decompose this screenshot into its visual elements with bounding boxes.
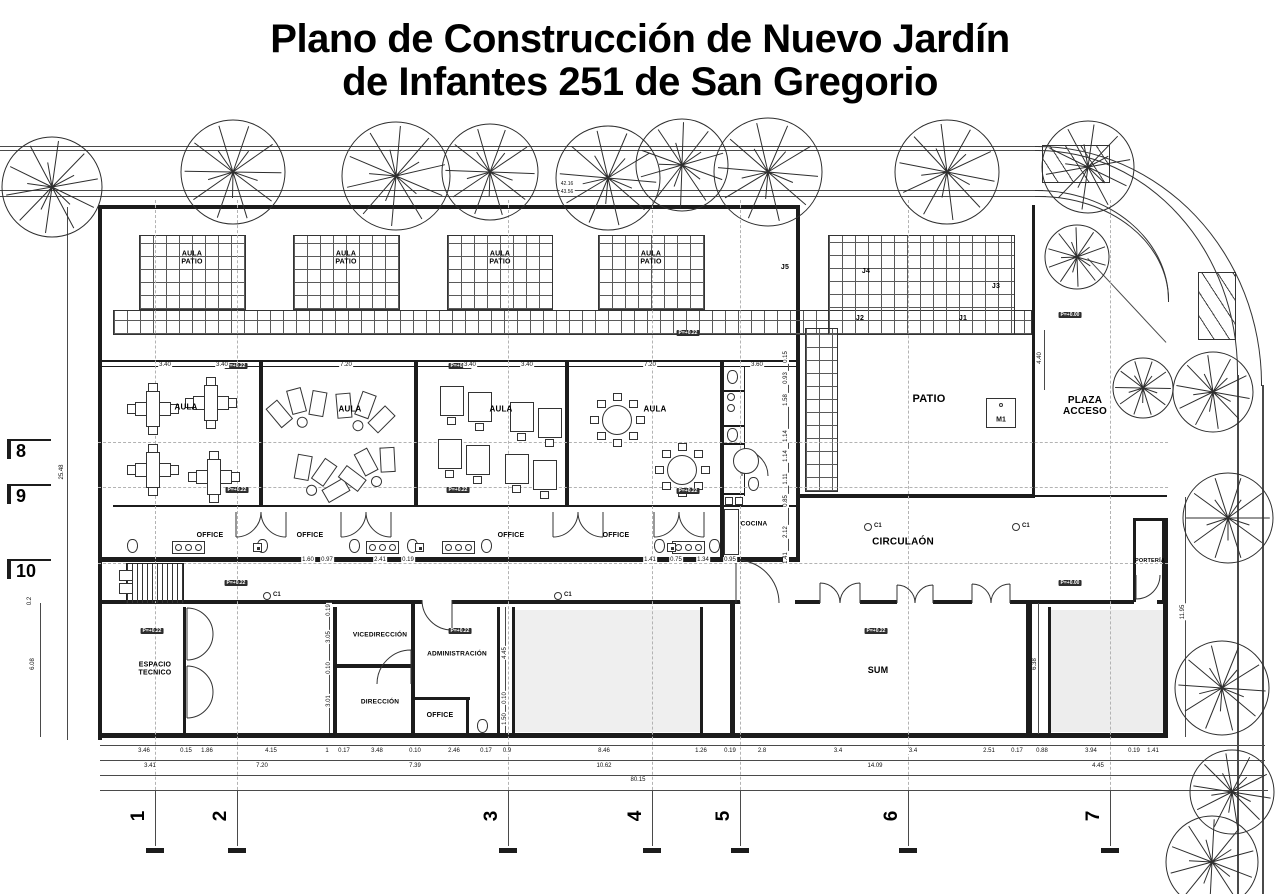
wall xyxy=(98,733,1168,738)
chair xyxy=(662,450,671,458)
fixture-dot xyxy=(419,547,422,550)
elevation-marker: P=+0.00 xyxy=(1059,580,1082,586)
room-label-patio: PATIO xyxy=(913,393,946,405)
dimension-text: 0.15 xyxy=(179,748,193,754)
stool xyxy=(304,483,319,498)
chair xyxy=(170,465,179,475)
door-arc xyxy=(915,585,933,603)
classroom-desk xyxy=(468,392,492,422)
door-arc xyxy=(187,608,213,634)
dimension-text: 42.16 xyxy=(560,181,575,187)
axis-tick xyxy=(7,439,11,459)
joint-label-J1: J1 xyxy=(959,315,967,323)
axis-marker-bottom-5: 5 xyxy=(713,806,735,826)
toilet xyxy=(477,719,488,733)
toilet xyxy=(727,428,738,442)
wall xyxy=(1035,495,1167,497)
axis-marker-bottom-4: 4 xyxy=(625,806,647,826)
axis-centerline xyxy=(155,200,157,845)
chair xyxy=(613,393,622,401)
dimension-text: 14.09 xyxy=(866,763,883,769)
dimension-text: 0.19 xyxy=(401,557,415,563)
door-arc xyxy=(366,512,391,537)
dimension-text: 7.20 xyxy=(339,362,353,368)
axis-tick xyxy=(643,848,661,853)
dimension-text: 0.9 xyxy=(502,748,512,754)
wall xyxy=(113,505,796,507)
door-arc xyxy=(422,600,452,630)
stair-landing xyxy=(119,570,133,581)
dimension-text: 4.45 xyxy=(1091,763,1105,769)
accessible-wc-circle xyxy=(733,448,759,474)
chair xyxy=(629,400,638,408)
sink xyxy=(369,544,376,551)
wall xyxy=(565,362,569,507)
dimension-text: 3.46 xyxy=(137,748,151,754)
wall xyxy=(700,607,703,735)
sink xyxy=(675,544,682,551)
dimension-text: 0.17 xyxy=(479,748,493,754)
elevation-marker: P=+0.22 xyxy=(226,487,249,493)
stair-landing xyxy=(119,583,133,594)
stool xyxy=(369,474,384,489)
dimension-text: 3.40 xyxy=(463,362,477,368)
tile-area xyxy=(805,328,838,492)
floor-plan: Plano de Construcción de Nuevo Jardín de… xyxy=(0,0,1280,894)
dimension-text: 1.26 xyxy=(694,748,708,754)
door-arc xyxy=(820,583,840,603)
chair xyxy=(629,432,638,440)
sink xyxy=(685,544,692,551)
stool xyxy=(295,416,308,429)
door-arc xyxy=(654,512,679,537)
wall xyxy=(730,600,735,735)
chair xyxy=(597,432,606,440)
planter-hatch xyxy=(1198,272,1236,340)
room-label-office-admin: OFFICE xyxy=(427,712,454,720)
door-arc xyxy=(991,584,1010,603)
wall xyxy=(333,607,337,735)
axis-tick xyxy=(1101,848,1119,853)
axis-tick xyxy=(7,559,11,579)
room-label-aula-patio-2: AULA PATIO xyxy=(335,250,356,265)
wall xyxy=(933,600,972,604)
dimension-text: 1.14 xyxy=(783,429,789,443)
chair xyxy=(209,494,219,503)
toilet xyxy=(709,539,720,553)
axis-marker-left-10: 10 xyxy=(16,561,36,582)
door-arc xyxy=(553,512,578,537)
dimension-text: 2.12 xyxy=(783,525,789,539)
sink xyxy=(465,544,472,551)
classroom-desk xyxy=(294,454,313,481)
wall xyxy=(1010,600,1134,604)
classroom-desk xyxy=(505,454,529,484)
room-label-office-3: OFFICE xyxy=(498,532,525,540)
axis-line xyxy=(7,439,51,441)
joint-label-J4: J4 xyxy=(862,268,870,276)
chair xyxy=(127,404,136,414)
m1-label: M1 xyxy=(996,417,1006,424)
door-arc xyxy=(261,512,286,537)
wall xyxy=(497,607,500,735)
dimension-text: 3.94 xyxy=(1084,748,1098,754)
dimension-text: 1.34 xyxy=(696,557,710,563)
dimension-text: 3.05 xyxy=(326,630,332,644)
chair xyxy=(678,443,687,451)
dimension-text: 3.60 xyxy=(750,362,764,368)
chair xyxy=(148,444,158,453)
sink xyxy=(175,544,182,551)
dimension-text: 0.75 xyxy=(669,557,683,563)
dimension-text: 6.38 xyxy=(1032,657,1038,671)
dimension-text: 0.19 xyxy=(723,748,737,754)
column-marker-c1-label: C1 xyxy=(564,592,572,598)
classroom-desk xyxy=(538,408,562,438)
tree-icon xyxy=(1043,223,1111,291)
tile-area xyxy=(293,235,400,310)
dimension-text: 3.40 xyxy=(520,362,534,368)
fixture-dot xyxy=(671,547,674,550)
elevation-marker: P=+0.22 xyxy=(677,488,700,494)
sink xyxy=(727,404,735,412)
elevation-marker: P=+0.22 xyxy=(865,628,888,634)
wall xyxy=(183,607,186,735)
chair xyxy=(512,485,521,493)
column-marker-c1-label: C1 xyxy=(1022,523,1030,529)
tile-area xyxy=(447,235,553,310)
column-marker-c1-label: C1 xyxy=(273,592,281,598)
sink xyxy=(389,544,396,551)
sink xyxy=(727,393,735,401)
chair xyxy=(694,450,703,458)
classroom-table xyxy=(146,391,160,427)
axis-marker-left-8: 8 xyxy=(16,441,26,462)
tree-icon xyxy=(1040,119,1136,215)
dimension-text: 1.11 xyxy=(783,472,789,485)
chair xyxy=(517,433,526,441)
tree-icon xyxy=(179,118,287,226)
dimension-text: 0.17 xyxy=(1010,748,1024,754)
dimension-text: 0.17 xyxy=(337,748,351,754)
sink xyxy=(185,544,192,551)
dimension-text: 80.15 xyxy=(629,777,646,783)
tree-icon xyxy=(1111,356,1175,420)
chair xyxy=(206,420,216,429)
wall xyxy=(259,362,263,507)
classroom-table xyxy=(204,385,218,421)
chair xyxy=(540,491,549,499)
line xyxy=(67,207,68,740)
chair xyxy=(148,383,158,392)
dimension-text: 2.46 xyxy=(447,748,461,754)
line xyxy=(40,603,41,737)
sink xyxy=(695,544,702,551)
chair xyxy=(231,472,240,482)
chair xyxy=(590,416,599,424)
column-marker-c1-circle xyxy=(554,592,562,600)
dimension-text: 0.15 xyxy=(783,350,789,364)
dimension-text: 0.10 xyxy=(502,691,508,705)
dimension-text: 3.4 xyxy=(908,748,918,754)
room-label-sum: SUM xyxy=(868,666,889,676)
chair xyxy=(148,426,158,435)
kitchen-appliance xyxy=(735,497,743,505)
classroom-desk xyxy=(308,390,327,417)
wall xyxy=(98,360,800,362)
classroom-desk xyxy=(510,402,534,432)
line xyxy=(100,775,1265,776)
dimension-text: 1.50 xyxy=(502,712,508,726)
dimension-text: 0.10 xyxy=(326,661,332,675)
stairs xyxy=(126,563,184,604)
room-label-aula-patio-1: AULA PATIO xyxy=(181,250,202,265)
door-arc xyxy=(341,512,366,537)
door-arc xyxy=(377,650,411,684)
chair xyxy=(148,487,158,496)
chair xyxy=(188,472,197,482)
chair xyxy=(206,377,216,386)
classroom-desk xyxy=(438,439,462,469)
dimension-text: 0.93 xyxy=(783,371,789,385)
classroom-round-table xyxy=(602,405,632,435)
wall xyxy=(98,557,800,562)
room-fill xyxy=(1051,610,1163,732)
toilet xyxy=(481,539,492,553)
axis-tick xyxy=(228,848,246,853)
room-label-aula-patio-4: AULA PATIO xyxy=(640,250,661,265)
elevation-marker: P=+0.22 xyxy=(447,487,470,493)
wall xyxy=(796,205,800,562)
room-label-circulacion: CIRCULAÓN xyxy=(872,537,934,548)
axis-tick xyxy=(731,848,749,853)
elevation-marker: P=+0.22 xyxy=(225,580,248,586)
wall xyxy=(452,600,740,604)
dimension-text: 0.95 xyxy=(723,557,737,563)
classroom-table xyxy=(207,459,221,495)
chair xyxy=(613,439,622,447)
axis-tick xyxy=(7,484,11,504)
axis-line xyxy=(652,790,653,846)
dimension-text: 0.88 xyxy=(1035,748,1049,754)
dimension-text: 4.40 xyxy=(1037,351,1043,365)
tree-icon xyxy=(340,120,452,232)
dimension-text: 0.19 xyxy=(326,603,332,617)
dimension-text: 0.85 xyxy=(783,494,789,508)
chair xyxy=(473,476,482,484)
axis-centerline xyxy=(98,487,1168,489)
axis-tick xyxy=(146,848,164,853)
tree-icon xyxy=(1171,350,1255,434)
joint-label-J5: J5 xyxy=(781,264,789,272)
toilet xyxy=(748,477,759,491)
axis-line xyxy=(908,790,909,846)
sink xyxy=(445,544,452,551)
sink xyxy=(379,544,386,551)
axis-line xyxy=(1110,790,1111,846)
dimension-text: 3.40 xyxy=(215,362,229,368)
room-label-office-4: OFFICE xyxy=(603,532,630,540)
room-label-office-2: OFFICE xyxy=(297,532,324,540)
page-title-line1: Plano de Construcción de Nuevo Jardín xyxy=(0,18,1280,61)
room-label-plaza-acceso: PLAZA ACCESO xyxy=(1063,395,1107,417)
dimension-text: 11.95 xyxy=(1180,604,1186,621)
door-arc xyxy=(972,584,991,603)
classroom-round-table xyxy=(667,455,697,485)
dimension-text: 43.56 xyxy=(560,189,575,195)
column-marker-c1-circle xyxy=(864,523,872,531)
dimension-text: 2.51 xyxy=(982,748,996,754)
chair xyxy=(597,400,606,408)
room-label-direccion: DIRECCIÓN xyxy=(361,698,399,705)
classroom-desk xyxy=(286,387,307,415)
elevation-marker: P=+0.00 xyxy=(1059,312,1082,318)
tree-icon xyxy=(1181,471,1275,565)
room-label-administracion: ADMINISTRACIÓN xyxy=(427,650,487,657)
elevation-marker: P=+0.22 xyxy=(141,628,164,634)
axis-marker-bottom-2: 2 xyxy=(210,806,232,826)
m1-dot xyxy=(999,403,1003,407)
axis-marker-bottom-6: 6 xyxy=(881,806,903,826)
dimension-text: 1.41 xyxy=(783,551,789,565)
room-label-vicedireccion: VICEDIRECCIÓN xyxy=(353,631,407,638)
door-arc xyxy=(736,560,779,603)
wall xyxy=(795,600,820,604)
room-label-cocina: COCINA xyxy=(741,520,768,527)
door-arc xyxy=(679,512,704,537)
door-arc xyxy=(236,512,261,537)
room-label-espacio-tecnico: ESPACIO TECNICO xyxy=(139,661,172,676)
chair xyxy=(209,451,219,460)
axis-marker-bottom-7: 7 xyxy=(1083,806,1105,826)
classroom-table xyxy=(146,452,160,488)
wall xyxy=(798,494,1035,498)
axis-marker-bottom-3: 3 xyxy=(481,806,503,826)
dimension-text: 3.41 xyxy=(143,763,157,769)
page-title-line2: de Infantes 251 de San Gregorio xyxy=(0,61,1280,104)
dimension-text: 0.2 xyxy=(27,596,33,606)
dimension-text: 1 xyxy=(324,748,329,754)
column-marker-c1-circle xyxy=(1012,523,1020,531)
dimension-text: 4.15 xyxy=(264,748,278,754)
wall xyxy=(1157,600,1168,604)
dimension-text: 1.41 xyxy=(643,557,657,563)
dimension-text: 25.48 xyxy=(59,463,65,480)
door-arc xyxy=(897,585,915,603)
joint-label-J3: J3 xyxy=(992,283,1000,291)
wall xyxy=(415,697,470,700)
chair xyxy=(662,482,671,490)
chair xyxy=(655,466,664,474)
elevation-marker: P=+0.22 xyxy=(677,330,700,336)
classroom-desk xyxy=(466,445,490,475)
kitchen-appliance xyxy=(725,497,733,505)
tree-icon xyxy=(712,116,824,228)
dimension-text: 7.39 xyxy=(408,763,422,769)
door-arc xyxy=(578,512,603,537)
axis-centerline xyxy=(98,442,1168,444)
joint-label-J2: J2 xyxy=(856,315,864,323)
room-label-aula-1: AULA xyxy=(174,404,197,413)
axis-line xyxy=(7,484,51,486)
room-fill xyxy=(515,610,700,732)
dimension-text: 0.97 xyxy=(320,557,334,563)
wall xyxy=(414,362,418,507)
desk-cluster xyxy=(267,382,334,443)
tree-icon xyxy=(893,118,1001,226)
sink xyxy=(195,544,202,551)
wall xyxy=(98,205,102,740)
dimension-text: 2.8 xyxy=(757,748,767,754)
chair xyxy=(545,439,554,447)
axis-line xyxy=(508,790,509,846)
dimension-text: 4.45 xyxy=(502,646,508,660)
desk-cluster xyxy=(336,438,408,507)
chair xyxy=(127,465,136,475)
toilet xyxy=(127,539,138,553)
dimension-text: 10.62 xyxy=(595,763,612,769)
chair xyxy=(475,423,484,431)
chair xyxy=(636,416,645,424)
dimension-text: 0.19 xyxy=(1127,748,1141,754)
room-label-porteria: PORTERÍA xyxy=(1135,558,1165,564)
door-arc xyxy=(1136,575,1160,599)
tree-icon xyxy=(440,122,540,222)
dimension-text: 3.01 xyxy=(326,694,332,708)
dimension-text: 1.86 xyxy=(200,748,214,754)
dimension-text: 1.41 xyxy=(1146,748,1160,754)
wall-fixture xyxy=(667,543,676,552)
classroom-desk xyxy=(440,386,464,416)
door-arc xyxy=(187,692,213,718)
dimension-text: 1.58 xyxy=(783,393,789,407)
room-label-aula-4: AULA xyxy=(643,406,666,415)
axis-centerline xyxy=(98,563,1168,565)
line xyxy=(1038,603,1039,734)
room-label-aula-patio-3: AULA PATIO xyxy=(489,250,510,265)
axis-line xyxy=(237,790,238,846)
dimension-text: 1.60 xyxy=(301,557,315,563)
room-label-office-1: OFFICE xyxy=(197,532,224,540)
wall xyxy=(860,600,897,604)
room-label-aula-2: AULA xyxy=(338,406,361,415)
dimension-text: 0.10 xyxy=(408,748,422,754)
line xyxy=(100,790,1268,791)
toilet xyxy=(654,539,665,553)
axis-line xyxy=(155,790,156,846)
elevation-marker: P=+0.22 xyxy=(449,628,472,634)
door-arc xyxy=(187,634,213,660)
chair xyxy=(228,398,237,408)
toilet xyxy=(727,370,738,384)
chair xyxy=(445,470,454,478)
tree-icon xyxy=(1164,814,1260,894)
tree-icon xyxy=(0,135,104,239)
kitchen-counter xyxy=(724,509,739,555)
dimension-text: 2.41 xyxy=(373,557,387,563)
axis-marker-left-9: 9 xyxy=(16,486,26,507)
toilet xyxy=(349,539,360,553)
tree-icon xyxy=(1173,639,1271,737)
classroom-desk xyxy=(533,460,557,490)
dimension-text: 6.08 xyxy=(30,657,36,671)
stool xyxy=(351,419,365,433)
room-label-aula-3: AULA xyxy=(489,406,512,415)
axis-tick xyxy=(499,848,517,853)
axis-tick xyxy=(899,848,917,853)
sink xyxy=(455,544,462,551)
wall xyxy=(466,700,469,734)
